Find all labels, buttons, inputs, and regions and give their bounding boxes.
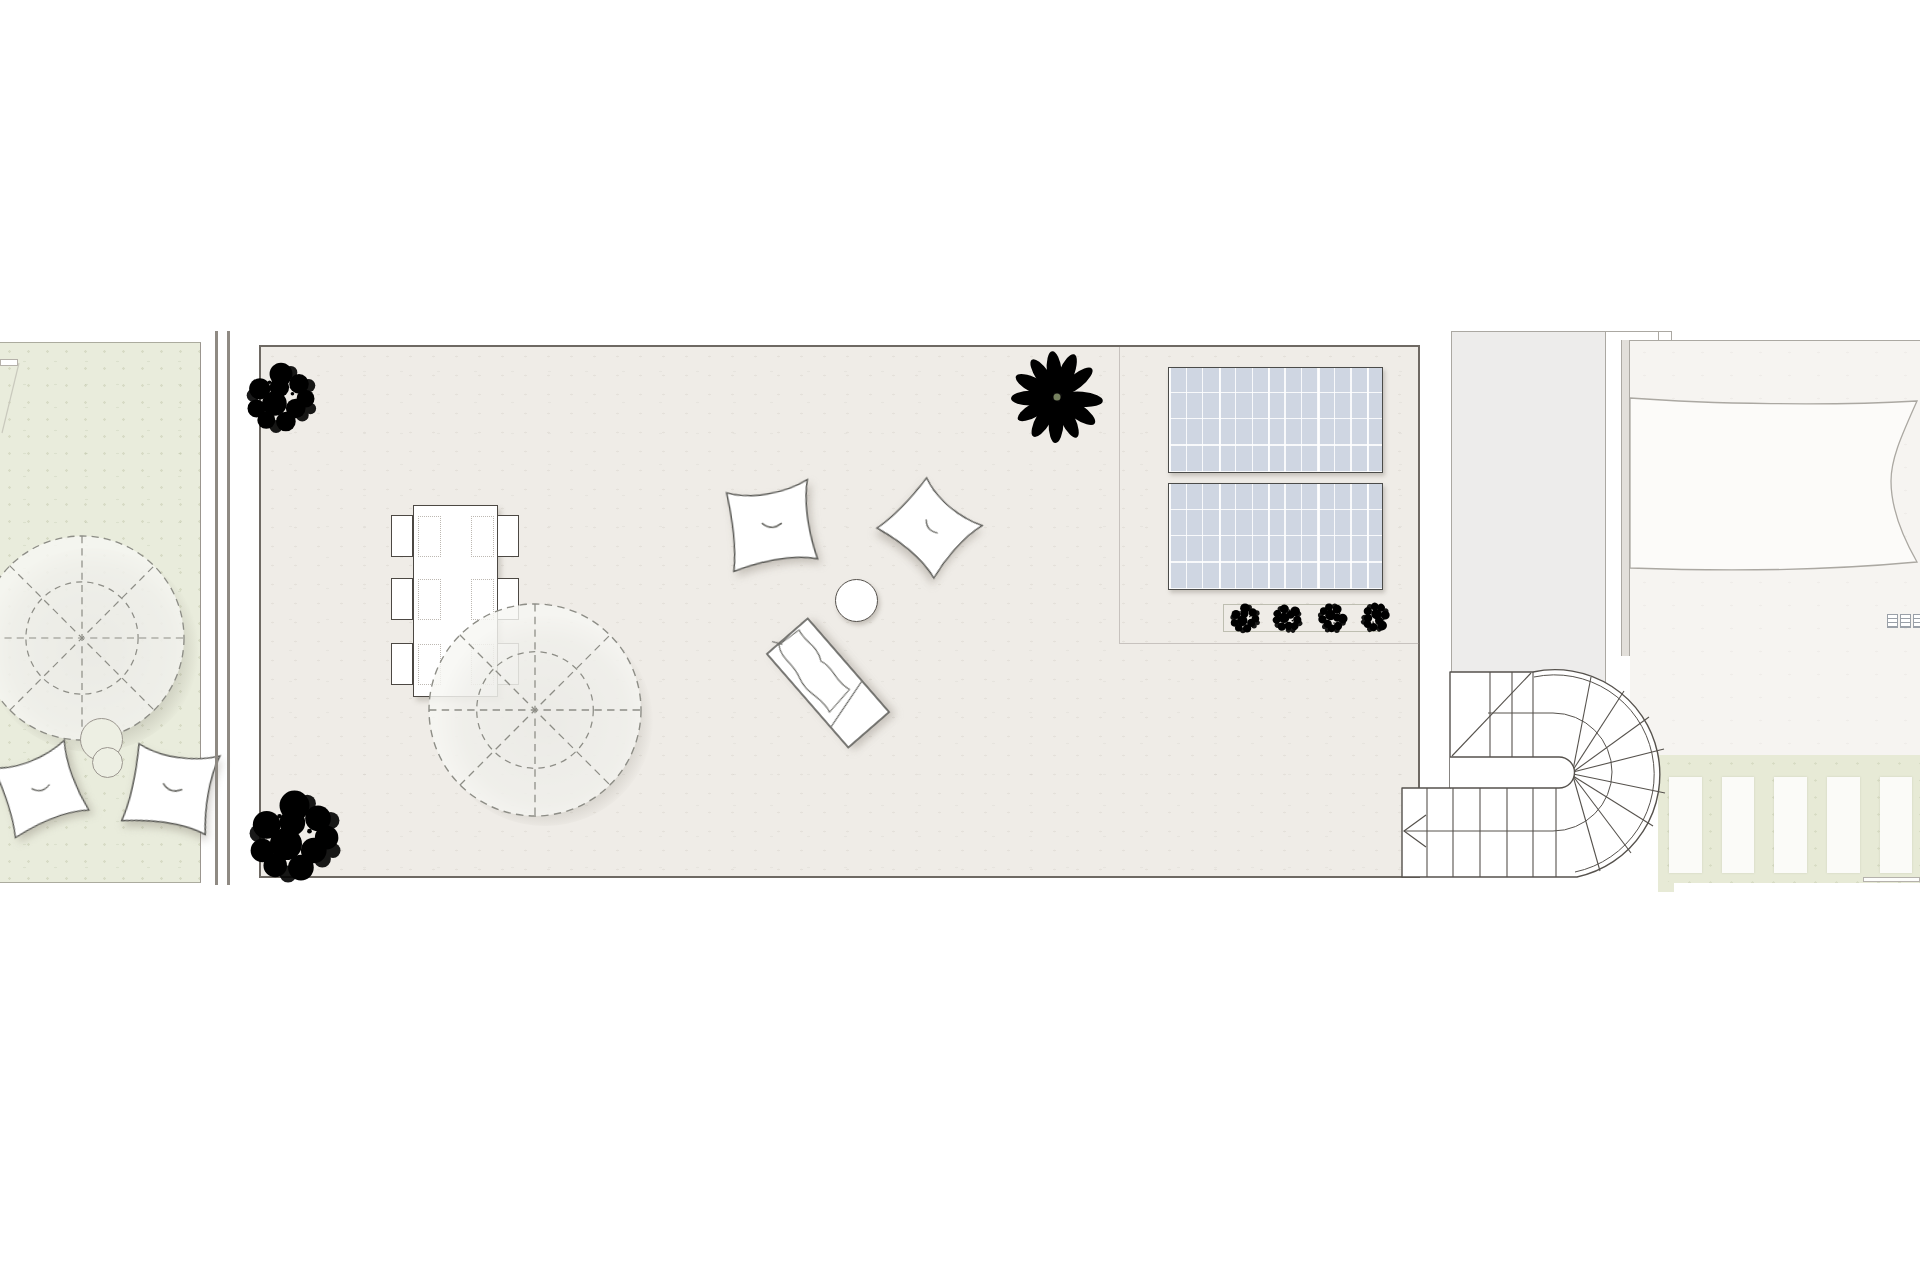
pergola-slat (1774, 777, 1807, 873)
terrace-parasol (423, 598, 647, 822)
pergola-planting-strip (1658, 755, 1920, 883)
vent-grille (1900, 614, 1911, 628)
pergola-slat (1880, 777, 1913, 873)
pergola-slat (1722, 777, 1755, 873)
pergola-slat (1827, 777, 1860, 873)
party-wall-line-inner (227, 331, 230, 885)
vent-grille (1913, 614, 1920, 628)
dining-chair (391, 643, 413, 685)
solar-zone-line-vertical (1119, 347, 1120, 643)
placemat (418, 516, 441, 557)
garden-side-table-small (92, 747, 123, 778)
bottom-right-wall-cap (1863, 877, 1920, 882)
solar-panel-1 (1168, 367, 1383, 473)
dining-chair (497, 515, 519, 557)
terrace-side-table (835, 579, 878, 622)
plant-top-middle (1007, 347, 1107, 447)
party-wall-line-outer (215, 331, 218, 885)
solar-panel-2 (1168, 483, 1383, 590)
dining-chair (391, 578, 413, 620)
right-wall-band (1621, 340, 1630, 656)
terrace-cushion-left (718, 472, 823, 577)
shrub-bottom-left (241, 782, 348, 889)
dining-chair (391, 515, 413, 557)
u-shaped-staircase (1395, 645, 1680, 885)
garden-cushion-right (115, 730, 228, 845)
garden-parasol (0, 534, 186, 742)
roof-terrace-floor-plan (0, 0, 1920, 1280)
plant-top-left (238, 354, 324, 440)
placemat (471, 516, 494, 557)
garden-path-line (0, 360, 22, 436)
vent-grille (1887, 614, 1898, 628)
hedge-shrub (1348, 590, 1404, 646)
